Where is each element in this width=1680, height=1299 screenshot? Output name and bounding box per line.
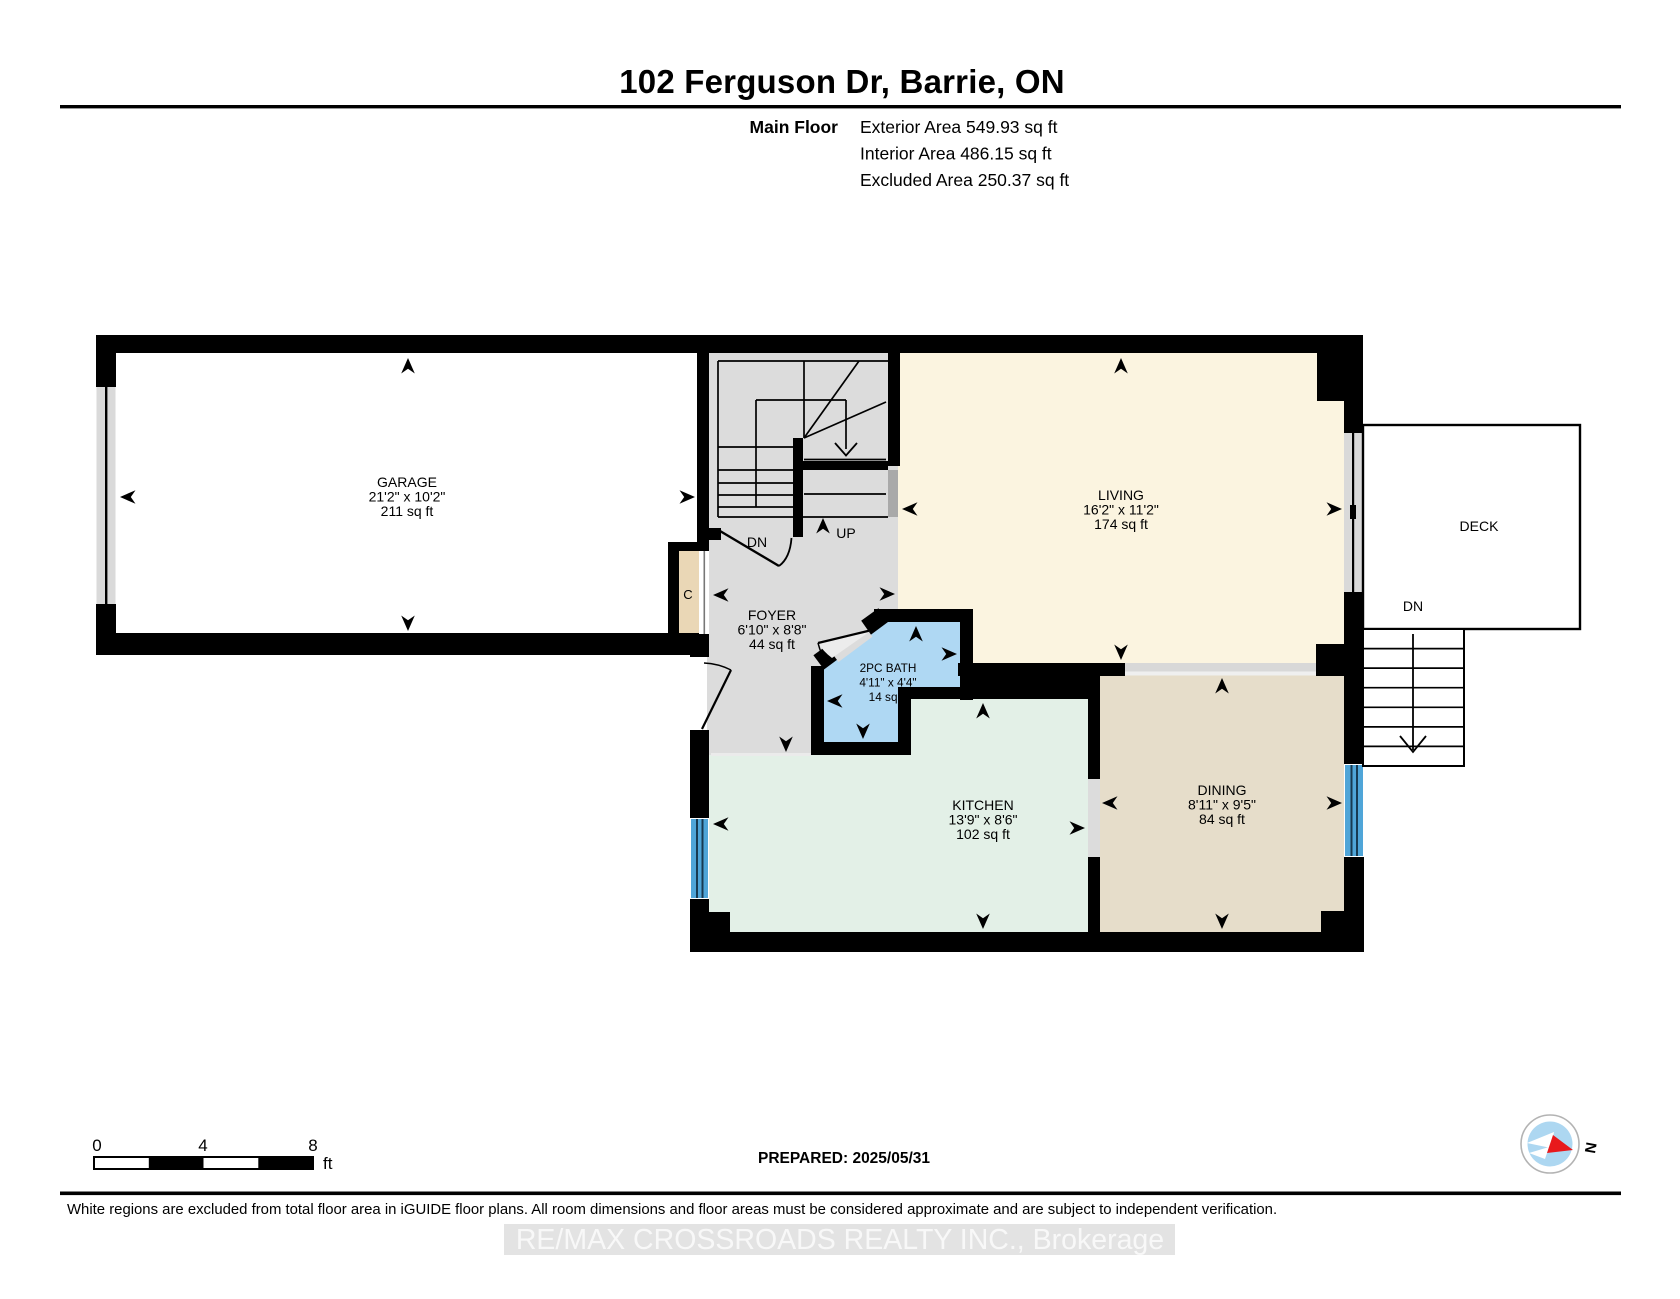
svg-text:Main Floor: Main Floor (750, 117, 839, 137)
svg-text:Excluded Area 250.37 sq ft: Excluded Area 250.37 sq ft (860, 170, 1069, 190)
svg-text:C: C (683, 587, 692, 602)
svg-text:DN: DN (1403, 598, 1423, 614)
svg-text:44 sq ft: 44 sq ft (749, 636, 795, 652)
svg-text:UP: UP (836, 525, 855, 541)
svg-text:Interior Area 486.15 sq ft: Interior Area 486.15 sq ft (860, 144, 1052, 164)
svg-text:8: 8 (308, 1136, 317, 1155)
svg-text:211 sq ft: 211 sq ft (381, 503, 434, 519)
svg-text:Exterior Area 549.93 sq ft: Exterior Area 549.93 sq ft (860, 117, 1058, 137)
svg-text:84 sq ft: 84 sq ft (1199, 811, 1245, 827)
svg-text:PREPARED: 2025/05/31: PREPARED: 2025/05/31 (758, 1150, 930, 1167)
svg-text:White regions are excluded fro: White regions are excluded from total fl… (67, 1202, 1277, 1218)
svg-text:0: 0 (92, 1136, 101, 1155)
svg-text:102 sq ft: 102 sq ft (956, 826, 1010, 842)
svg-text:RE/MAX CROSSROADS REALTY INC.,: RE/MAX CROSSROADS REALTY INC., Brokerage (516, 1224, 1164, 1256)
svg-text:ft: ft (323, 1154, 333, 1173)
svg-text:2PC BATH: 2PC BATH (860, 661, 917, 675)
svg-text:4: 4 (198, 1136, 207, 1155)
svg-text:174 sq ft: 174 sq ft (1094, 516, 1148, 532)
svg-text:102 Ferguson Dr, Barrie, ON: 102 Ferguson Dr, Barrie, ON (619, 63, 1065, 100)
svg-text:DECK: DECK (1460, 518, 1500, 534)
